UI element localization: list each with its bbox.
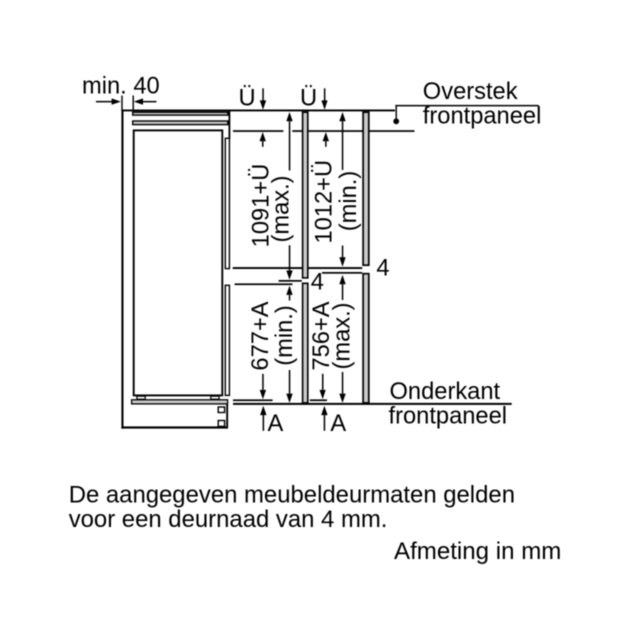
svg-text:De aangegeven meubeldeurmaten: De aangegeven meubeldeurmaten gelden [69, 482, 515, 509]
svg-text:min. 40: min. 40 [82, 74, 160, 100]
svg-text:1012+Ü: 1012+Ü [310, 160, 337, 244]
svg-text:frontpaneel: frontpaneel [423, 103, 542, 129]
svg-text:Ü: Ü [239, 85, 256, 112]
svg-text:(min.): (min.) [336, 171, 362, 232]
svg-text:voor een deurnaad van 4 mm.: voor een deurnaad van 4 mm. [69, 506, 388, 533]
svg-text:(max.): (max.) [269, 175, 295, 242]
svg-text:4: 4 [311, 269, 324, 295]
svg-text:(max.): (max.) [330, 302, 356, 369]
svg-text:Ü: Ü [300, 85, 317, 112]
svg-text:Onderkant: Onderkant [390, 379, 501, 405]
svg-text:A: A [268, 411, 284, 437]
svg-text:677+A: 677+A [248, 301, 274, 370]
svg-text:4: 4 [376, 256, 389, 282]
svg-text:Overstek: Overstek [423, 79, 518, 105]
svg-text:A: A [330, 411, 346, 437]
svg-text:Afmeting in mm: Afmeting in mm [394, 538, 561, 565]
svg-text:(min.): (min.) [272, 305, 298, 366]
svg-text:frontpaneel: frontpaneel [389, 404, 508, 430]
